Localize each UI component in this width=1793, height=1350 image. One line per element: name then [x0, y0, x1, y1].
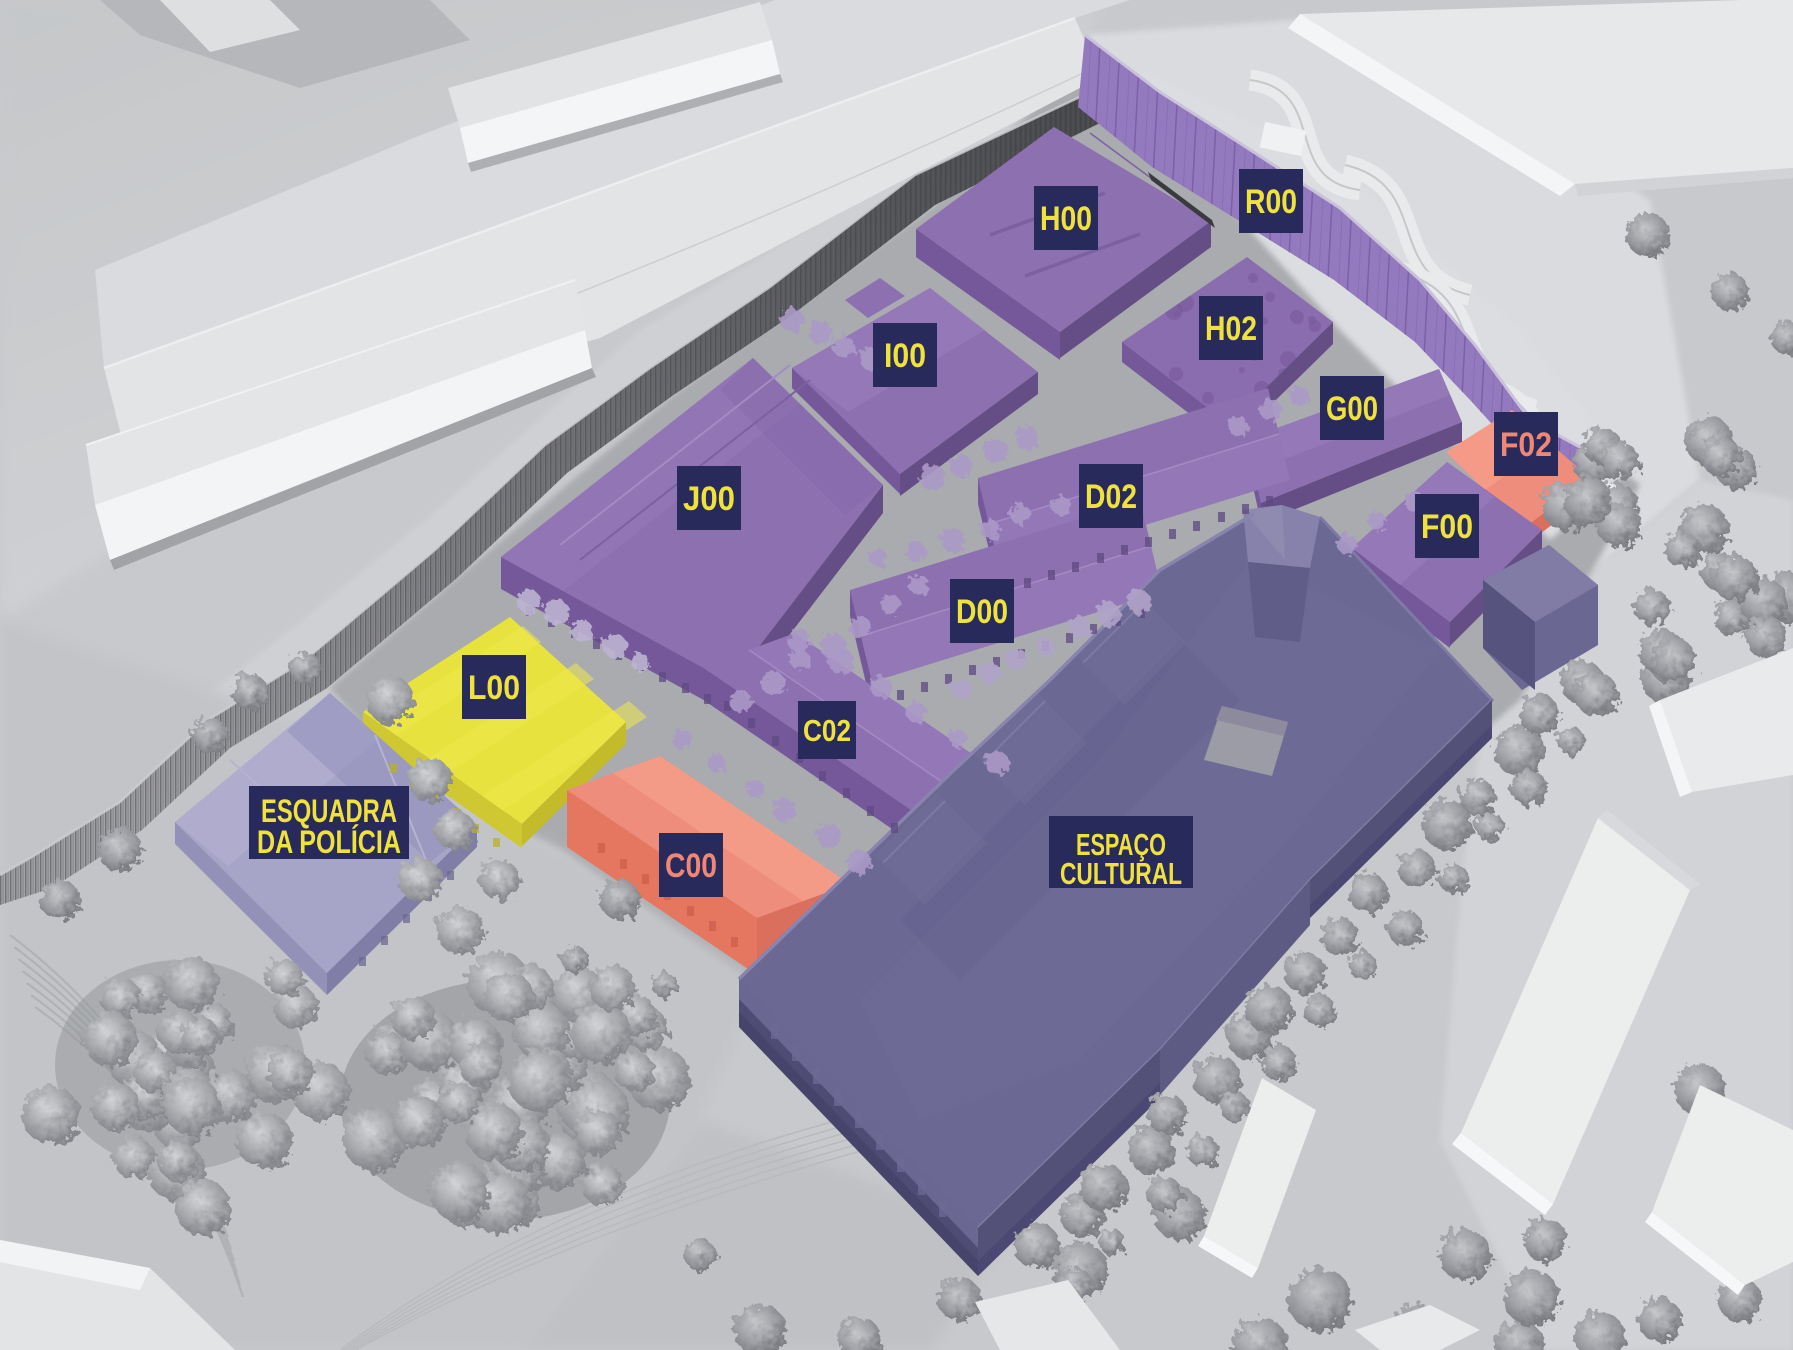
svg-text:C02: C02 [803, 713, 851, 748]
svg-text:R00: R00 [1245, 183, 1297, 221]
svg-text:H00: H00 [1040, 200, 1092, 238]
svg-text:DA POLÍCIA: DA POLÍCIA [257, 824, 401, 860]
svg-text:CULTURAL: CULTURAL [1060, 856, 1182, 891]
svg-text:I00: I00 [884, 337, 926, 375]
svg-text:F02: F02 [1500, 426, 1552, 464]
svg-text:D02: D02 [1085, 478, 1137, 516]
svg-text:C00: C00 [665, 847, 717, 885]
svg-text:J00: J00 [683, 480, 735, 518]
svg-text:L00: L00 [468, 669, 520, 707]
svg-text:H02: H02 [1205, 310, 1257, 348]
svg-text:G00: G00 [1326, 390, 1378, 428]
svg-text:F00: F00 [1421, 508, 1473, 546]
svg-text:D00: D00 [956, 593, 1008, 631]
